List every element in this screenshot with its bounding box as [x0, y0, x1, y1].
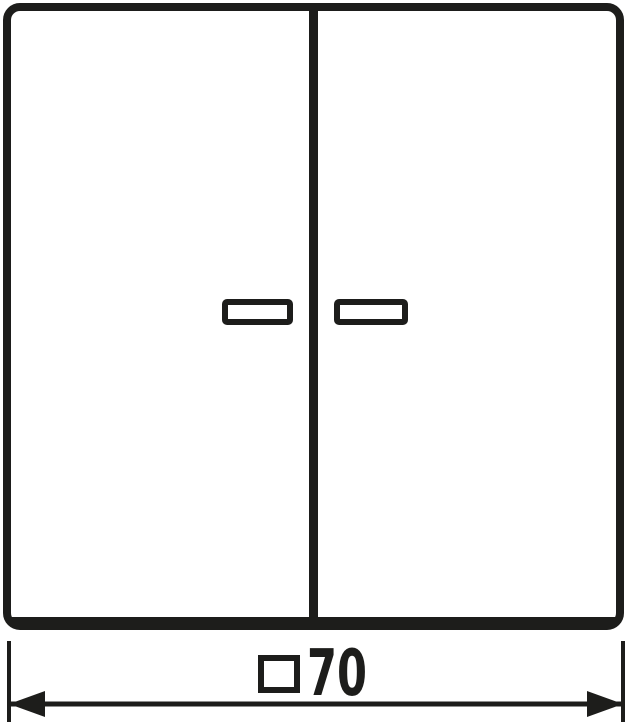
dimension-arrowhead-right: [587, 691, 623, 717]
dimension-annotation: 70: [9, 637, 623, 722]
square-dimension-icon: [261, 658, 297, 690]
lens-window-right: [337, 302, 405, 322]
lens-window-left: [225, 302, 290, 322]
rocker-left: [12, 12, 309, 616]
technical-drawing: 70: [0, 0, 631, 724]
dimension-arrowhead-left: [9, 691, 45, 717]
rocker-right: [319, 12, 616, 616]
drawing-svg: 70: [0, 0, 631, 724]
dimension-value: 70: [307, 637, 367, 711]
switch-plate: [7, 5, 620, 626]
